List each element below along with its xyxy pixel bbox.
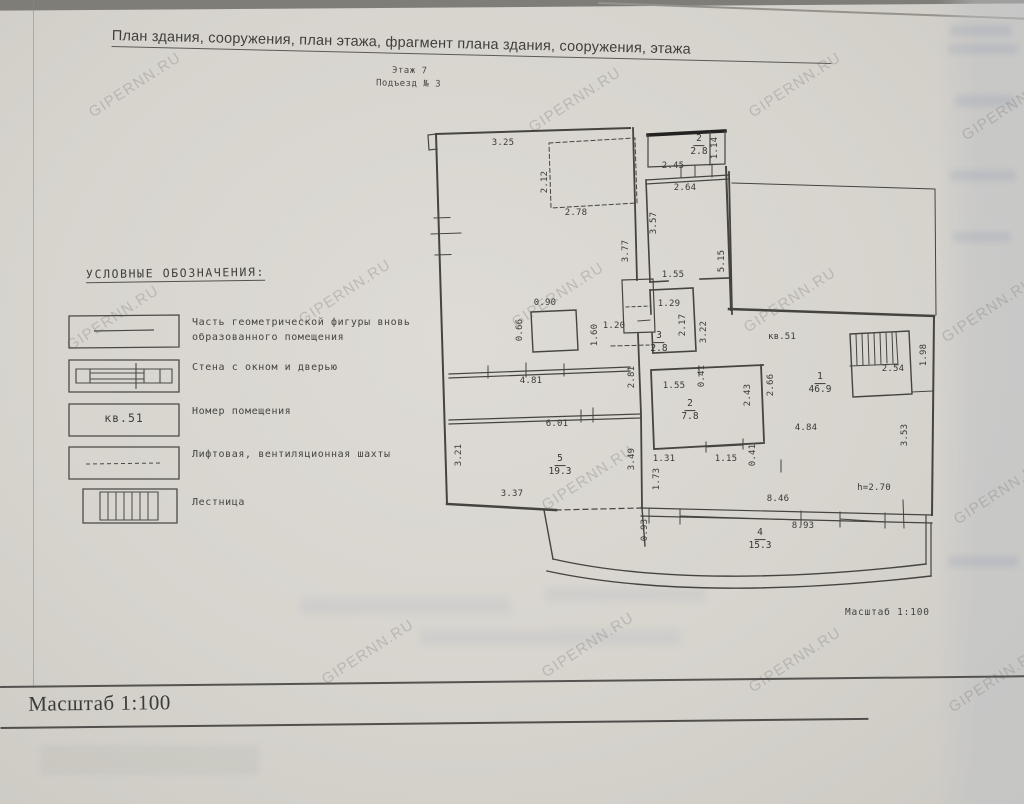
dimension-label: 1.55 <box>663 381 685 391</box>
legend-label: Часть геометрической фигуры вновь образо… <box>192 316 422 345</box>
dimension-label: 0.66 <box>515 319 525 341</box>
sheet-left-margin-line <box>33 0 34 688</box>
watermark: GIPERNN.RU <box>319 616 417 688</box>
dimension-label: 6.01 <box>546 419 568 429</box>
dimension-label: 0.41 <box>748 444 758 466</box>
dimension-label: 2.66 <box>766 374 776 396</box>
legend-heading: УСЛОВНЫЕ ОБОЗНАЧЕНИЯ: <box>86 265 265 283</box>
sheet-top-edge <box>0 0 1024 11</box>
bleed-through-mark <box>948 44 1018 54</box>
dimension-label: 1.29 <box>658 299 680 309</box>
dimension-label: 2.78 <box>565 208 587 218</box>
dimension-label: 2.12 <box>540 171 550 193</box>
dimension-label: 2.54 <box>882 364 904 374</box>
dimension-label: 2.17 <box>678 314 688 336</box>
dimension-label: 1.15 <box>715 454 737 464</box>
dimension-label: 3.21 <box>454 444 464 466</box>
dimension-label: 1.98 <box>919 344 929 366</box>
dimension-label: 1.31 <box>653 454 675 464</box>
room-label: 32.8 <box>650 331 667 355</box>
dimension-label: 5.15 <box>717 250 727 272</box>
legend-item-new-figure: Часть геометрической фигуры вновь образо… <box>68 314 428 352</box>
dimension-label: 2.81 <box>627 366 637 388</box>
dimension-label: 8.93 <box>792 521 814 531</box>
room-label: 146.9 <box>809 372 832 396</box>
dimension-label: 0.41 <box>697 365 707 387</box>
page-title: План здания, сооружения, план этажа, фра… <box>112 28 832 64</box>
legend-symbol-stairs-icon <box>82 488 194 522</box>
dimension-label: h=2.70 <box>857 483 891 493</box>
legend-item-stairs: Лестница <box>68 488 428 526</box>
dimension-label: 3.49 <box>627 448 637 470</box>
dimension-label: 2.64 <box>674 183 696 193</box>
legend-label: Стена с окном и дверью <box>192 361 422 376</box>
floor-label: Этаж 7 <box>392 66 428 77</box>
dimension-label: 1.20 <box>603 321 625 331</box>
bleed-through-mark <box>950 25 1012 36</box>
dimension-label: 3.37 <box>501 489 523 499</box>
footer-scale-label: Масштаб 1:100 <box>28 690 171 716</box>
dimension-label: 1.73 <box>652 468 662 490</box>
legend-symbol-solid-line-icon <box>68 314 180 348</box>
dimension-label: 3.57 <box>649 212 659 234</box>
scanned-floorplan-page: GIPERNN.RUGIPERNN.RUGIPERNN.RUGIPERNN.RU… <box>0 0 1024 804</box>
dimension-label: 3.25 <box>492 138 514 148</box>
bleed-through-mark <box>953 232 1011 242</box>
legend-label: Номер помещения <box>192 405 422 420</box>
dimension-label: 0.93 <box>640 519 650 541</box>
bleed-through-mark <box>948 556 1018 567</box>
bleed-through-mark <box>40 745 260 775</box>
entrance-label: Подъезд № 3 <box>376 78 441 89</box>
legend-symbol-room-number: кв.51 <box>68 403 180 437</box>
legend-item-room-number: кв.51 Номер помещения <box>68 403 428 441</box>
dimension-label: 0.90 <box>534 298 556 308</box>
legend-label: Лифтовая, вентиляционная шахты <box>192 448 422 463</box>
dimension-label: 1.14 <box>710 137 720 159</box>
dimension-label: 4.81 <box>520 376 542 386</box>
floorplan: 3.252.122.783.770.900.661.201.604.816.01… <box>433 118 943 593</box>
watermark: GIPERNN.RU <box>539 609 637 681</box>
legend-symbol-wall-window-door-icon <box>68 359 180 393</box>
dimension-label: 3.53 <box>900 424 910 446</box>
legend-room-number-text: кв.51 <box>68 411 180 425</box>
dimension-label: 1.55 <box>662 270 684 280</box>
bleed-through-mark <box>420 630 680 645</box>
dimension-label: кв.51 <box>768 332 796 342</box>
footer-table: Масштаб 1:100 <box>0 669 1024 680</box>
bleed-through-mark <box>300 598 510 614</box>
watermark: GIPERNN.RU <box>86 49 184 121</box>
legend-item-shaft: Лифтовая, вентиляционная шахты <box>68 446 428 484</box>
legend-label: Лестница <box>192 496 422 511</box>
watermark: GIPERNN.RU <box>746 624 844 696</box>
dimension-label: 2.43 <box>743 384 753 406</box>
room-label: 415.3 <box>749 528 772 552</box>
dimension-label: 3.77 <box>621 240 631 262</box>
room-label: 22.8 <box>690 134 707 158</box>
legend-item-wall-window-door: Стена с окном и дверью <box>68 359 428 397</box>
dimension-label: 4.84 <box>795 423 817 433</box>
dimension-label: 8.46 <box>767 494 789 504</box>
room-label: 27.8 <box>681 399 698 423</box>
dimension-label: 3.22 <box>699 321 709 343</box>
footer-divider <box>0 718 868 729</box>
room-label: 519.3 <box>549 454 572 478</box>
footer-divider <box>0 675 1024 687</box>
legend-symbol-dashed-line-icon <box>68 446 180 480</box>
dimension-label: 2.45 <box>662 161 684 171</box>
plan-scale-note: Масштаб 1:100 <box>845 607 930 618</box>
dimension-label: 1.60 <box>590 324 600 346</box>
bleed-through-mark <box>950 170 1016 181</box>
